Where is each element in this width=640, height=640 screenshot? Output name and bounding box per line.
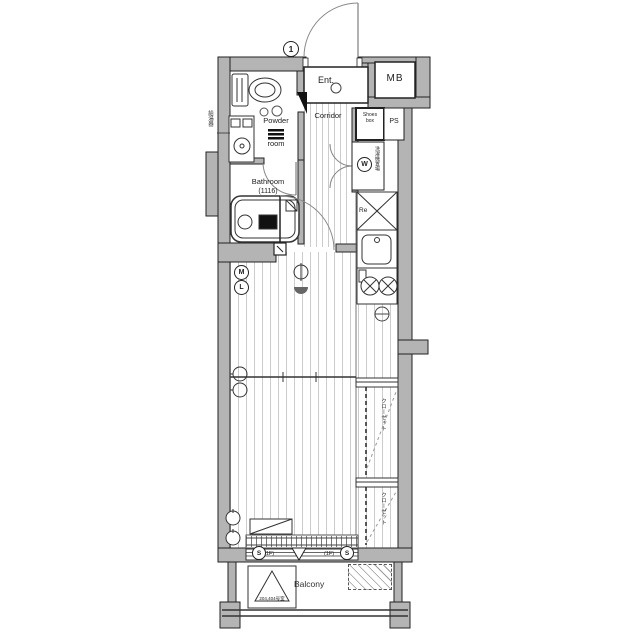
closet-label-1: クローゼット bbox=[379, 398, 387, 470]
washer-space-label: 洗濯機置場 bbox=[374, 146, 381, 188]
washbasin bbox=[229, 116, 254, 162]
door-number-badge: 1 bbox=[283, 41, 299, 57]
washer-door-swing-bottom bbox=[330, 166, 352, 188]
entrance-door-swing bbox=[304, 3, 358, 57]
floor-1f-right-label: (1F) bbox=[324, 551, 334, 557]
powder-room-label-2: room bbox=[252, 140, 300, 148]
closet bbox=[356, 378, 398, 545]
symbol-l-badge: L bbox=[234, 280, 249, 295]
water-heater-label: 給湯器 bbox=[206, 110, 214, 158]
floorplan-drawing bbox=[0, 0, 640, 640]
closet-label-2: クローゼット bbox=[379, 492, 387, 542]
bottom-window bbox=[226, 509, 358, 560]
shoes-box-label: Shoesbox bbox=[356, 113, 384, 124]
window-s-left-badge: S bbox=[252, 546, 266, 560]
toilet bbox=[232, 74, 281, 116]
evacuation-hatch bbox=[348, 564, 392, 590]
pipe-space-label: PS bbox=[383, 118, 405, 126]
room-numbers-label: 204,404号室 bbox=[249, 597, 295, 602]
symbol-m-badge: M bbox=[234, 265, 249, 280]
meter-box-label: MB bbox=[375, 73, 415, 84]
powder-room-label-1: Powder bbox=[252, 117, 300, 125]
refrigerator-label: Re bbox=[359, 207, 367, 214]
entrance-label: Ent. bbox=[318, 76, 334, 86]
balcony-label: Balcony bbox=[294, 580, 324, 589]
window-s-right-badge: S bbox=[340, 546, 354, 560]
floor-plan: Ent. MB Shoesbox PS Corridor Powder room… bbox=[0, 0, 640, 640]
corridor-label: Corridor bbox=[302, 112, 354, 120]
bathroom-label: Bathroom bbox=[238, 178, 298, 186]
washer-symbol-badge: W bbox=[357, 157, 372, 172]
kitchen bbox=[356, 190, 397, 548]
bathroom-size-label: (1116) bbox=[238, 188, 298, 196]
washer-door-swing-top bbox=[330, 144, 352, 166]
shoes-box-line2: box bbox=[366, 118, 374, 124]
bathroom-fixtures bbox=[231, 162, 299, 242]
